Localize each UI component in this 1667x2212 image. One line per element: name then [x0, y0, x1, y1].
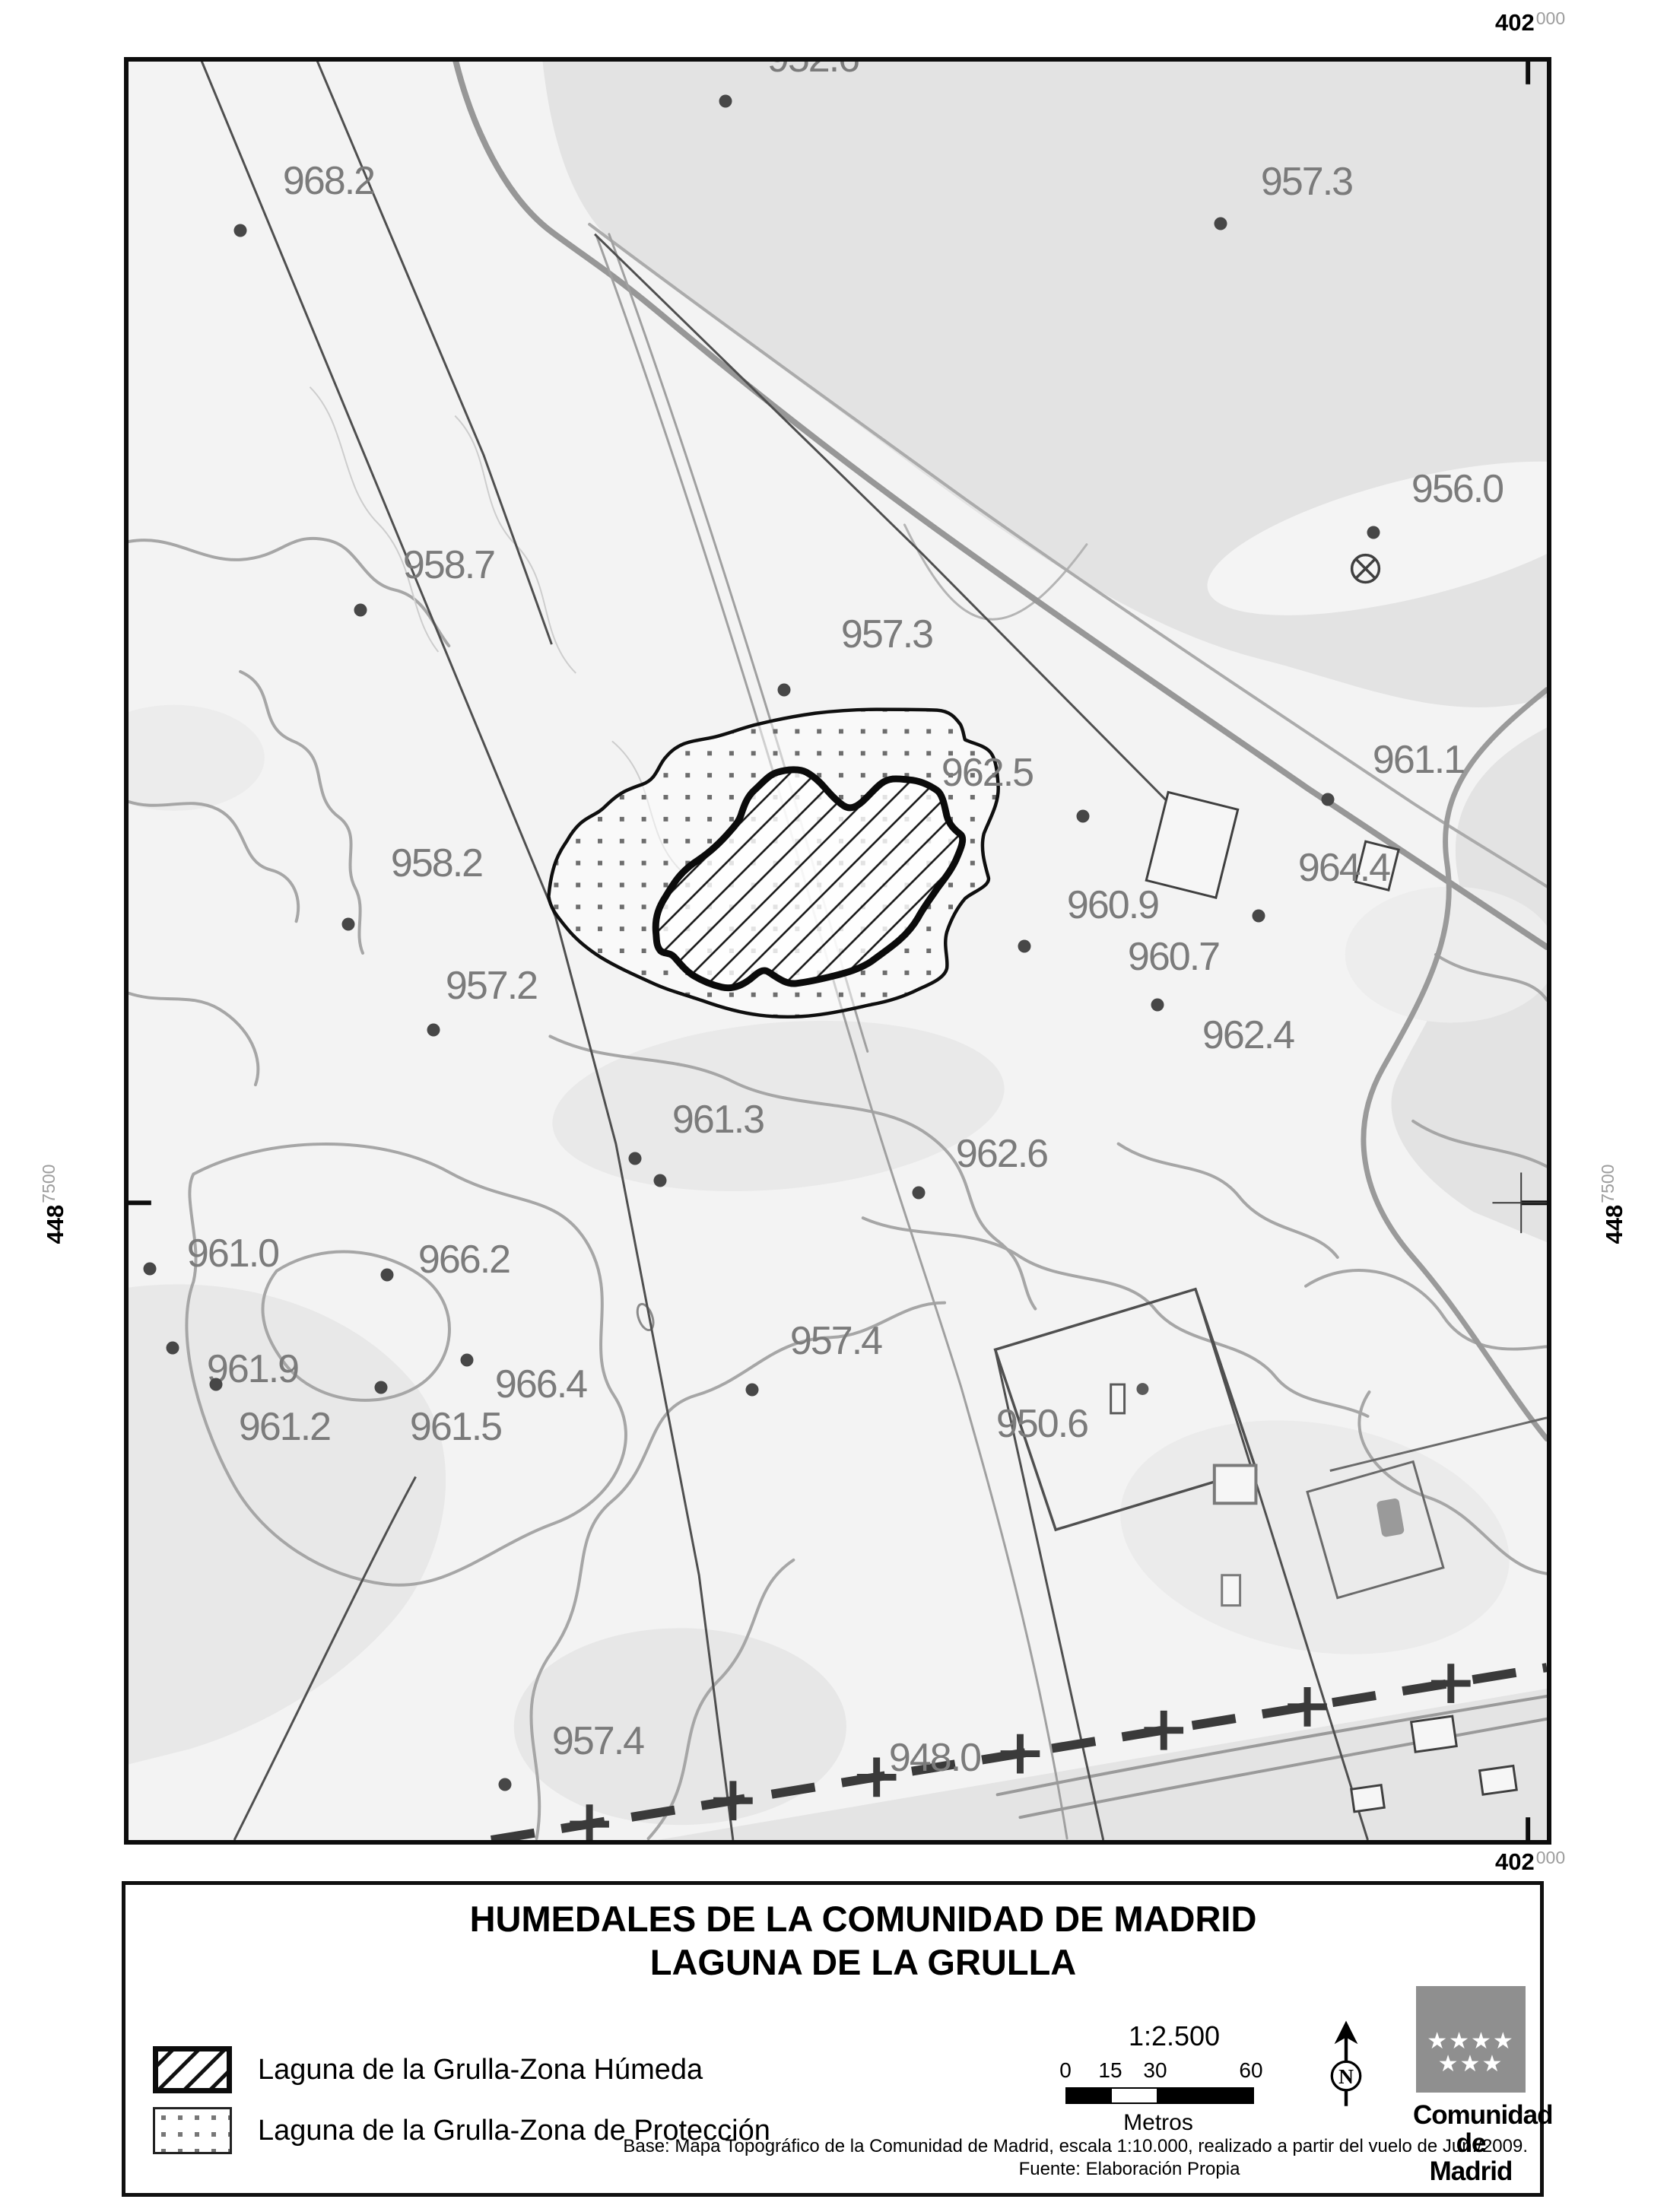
spot-height-dot [1018, 940, 1031, 953]
star-icon: ★ [1427, 2029, 1449, 2054]
scale-bar-segment [1067, 2089, 1112, 2102]
spot-height-dot [210, 1378, 223, 1391]
star-icon: ★ [1460, 2052, 1482, 2077]
spot-height-dot [342, 918, 355, 931]
grid-coordinate-suffix: 7500 [40, 1165, 58, 1203]
spot-height-dot [144, 1263, 157, 1276]
spot-height-dot [375, 1381, 388, 1394]
grid-coordinate-right: 4487500 [1597, 1120, 1630, 1288]
spot-height-label: 960.9 [1067, 885, 1158, 925]
spot-height-dot [719, 95, 732, 108]
grid-coordinate-top-right: 402000 [1495, 11, 1565, 34]
spot-height-label: 957.4 [552, 1721, 643, 1761]
spot-height-dot [913, 1187, 926, 1200]
spot-height-label: 968.2 [283, 161, 374, 201]
dots-swatch-icon [153, 2107, 232, 2154]
grid-coordinate-value: 402 [1495, 1848, 1535, 1875]
spot-height-dot [461, 1354, 474, 1367]
spot-height-label: 957.2 [446, 966, 537, 1006]
spot-height-label: 957.3 [841, 615, 932, 654]
source-note-line2: Fuente: Elaboración Propia [1019, 2159, 1240, 2180]
spot-height-label: 956.0 [1411, 469, 1503, 509]
spot-height-label: 962.4 [1202, 1015, 1294, 1055]
spot-height-dot [381, 1269, 394, 1282]
grid-coordinate-suffix: 000 [1536, 8, 1565, 28]
map-title-line1: HUMEDALES DE LA COMUNIDAD DE MADRID [470, 1897, 1257, 1940]
spot-height-label: 961.3 [672, 1100, 764, 1139]
spot-height-label: 948.0 [889, 1738, 980, 1778]
north-letter: N [1338, 2064, 1354, 2088]
spot-height-label: 962.6 [956, 1134, 1047, 1174]
north-arrow: N [1321, 2020, 1371, 2113]
grid-coordinate-value: 448 [1602, 1205, 1626, 1244]
scale-bar-segment [1157, 2089, 1253, 2102]
spot-height-dot [499, 1778, 512, 1791]
grid-coordinate-suffix: 7500 [1599, 1165, 1617, 1203]
scale-bar [1065, 2087, 1254, 2104]
spot-height-label: 961.0 [187, 1234, 278, 1273]
spot-height-dot [1253, 910, 1265, 923]
scale-ratio: 1:2.500 [1129, 2020, 1220, 2052]
spot-height-label: 961.5 [410, 1407, 501, 1447]
spot-height-dot [1215, 218, 1227, 230]
star-icon: ★ [1481, 2052, 1503, 2077]
spot-height-label: 952.6 [767, 57, 859, 78]
spot-height-dot [654, 1174, 667, 1187]
spot-height-dot [1322, 793, 1335, 806]
spot-height-label: 958.7 [403, 545, 494, 585]
spot-height-label: 950.6 [996, 1404, 1088, 1444]
spot-height-label: 957.3 [1261, 162, 1352, 202]
spot-height-dot [1151, 999, 1164, 1012]
spot-height-label: 962.5 [941, 753, 1033, 793]
spot-height-label: 958.2 [391, 844, 482, 883]
star-icon: ★ [1438, 2052, 1460, 2077]
spot-height-dot [629, 1152, 642, 1165]
scale-bar-segment [1112, 2089, 1157, 2102]
map-title: HUMEDALES DE LA COMUNIDAD DE MADRID LAGU… [470, 1897, 1257, 1984]
scale-tick: 60 [1239, 2058, 1262, 2083]
spot-height-layer: 952.6968.2957.3956.0958.7957.3962.5961.1… [129, 62, 1547, 1840]
scale-unit-label: Metros [1123, 2110, 1193, 2136]
star-icon: ★ [1449, 2029, 1471, 2054]
spot-height-dot [1367, 526, 1380, 539]
spot-height-dot [746, 1384, 759, 1397]
map-sheet: 952.6968.2957.3956.0958.7957.3962.5961.1… [0, 0, 1667, 2212]
logo-text-line1: Comunidad [1413, 2101, 1529, 2129]
source-note-line1: Base: Mapa Topográfico de la Comunidad d… [623, 2136, 1528, 2157]
legend-panel: HUMEDALES DE LA COMUNIDAD DE MADRID LAGU… [122, 1881, 1544, 2197]
spot-height-label: 966.4 [495, 1365, 586, 1404]
grid-coordinate-bottom-right: 402000 [1495, 1850, 1565, 1874]
spot-height-label: 961.2 [239, 1407, 330, 1447]
spot-height-dot [167, 1342, 179, 1355]
grid-coordinate-value: 402 [1495, 9, 1535, 36]
grid-coordinate-left: 4487500 [38, 1120, 71, 1288]
spot-height-dot [778, 684, 791, 697]
spot-height-label: 957.4 [790, 1321, 881, 1361]
spot-height-dot [427, 1024, 440, 1037]
star-icon: ★ [1493, 2029, 1515, 2054]
spot-height-dot [234, 224, 247, 237]
spot-height-label: 960.7 [1128, 937, 1219, 977]
map-title-line2: LAGUNA DE LA GRULLA [470, 1940, 1257, 1984]
star-icon: ★ [1471, 2029, 1493, 2054]
logo-stars: ★★★★★★★ [1416, 2030, 1526, 2076]
scale-tick: 15 [1098, 2058, 1122, 2083]
scale-tick: 30 [1143, 2058, 1167, 2083]
spot-height-dot [1077, 810, 1090, 823]
scale-tick: 0 [1059, 2058, 1072, 2083]
spot-height-label: 966.2 [418, 1240, 510, 1279]
grid-coordinate-suffix: 000 [1536, 1848, 1565, 1867]
spot-height-dot [354, 604, 367, 617]
grid-coordinate-value: 448 [43, 1205, 67, 1244]
comunidad-madrid-logo: ★★★★★★★ [1416, 1986, 1526, 2093]
spot-height-label: 961.1 [1373, 740, 1464, 780]
spot-height-label: 964.4 [1298, 848, 1389, 888]
map-canvas: 952.6968.2957.3956.0958.7957.3962.5961.1… [124, 57, 1551, 1845]
